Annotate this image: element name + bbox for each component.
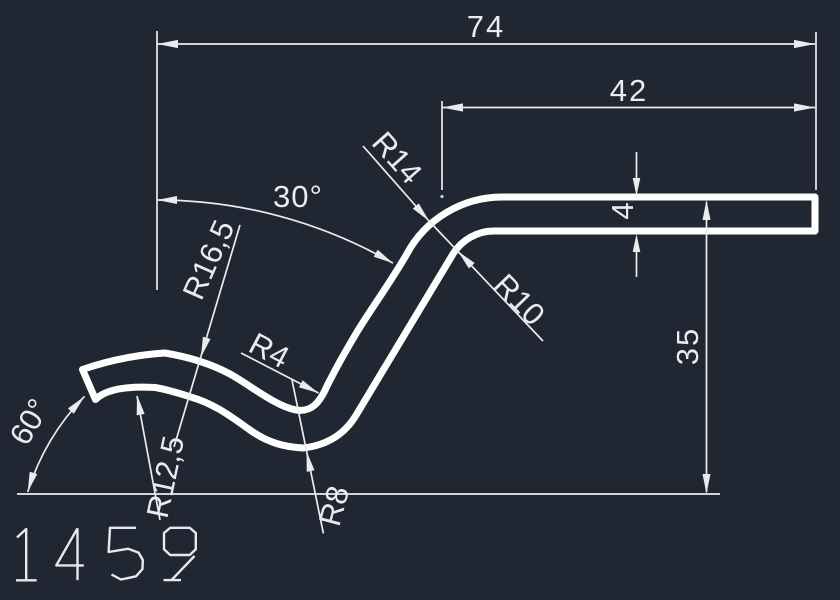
svg-text:35: 35 [670,327,705,365]
svg-text:42: 42 [610,73,648,108]
svg-text:30°: 30° [273,179,323,214]
svg-text:74: 74 [467,9,505,44]
svg-text:4: 4 [605,202,640,219]
